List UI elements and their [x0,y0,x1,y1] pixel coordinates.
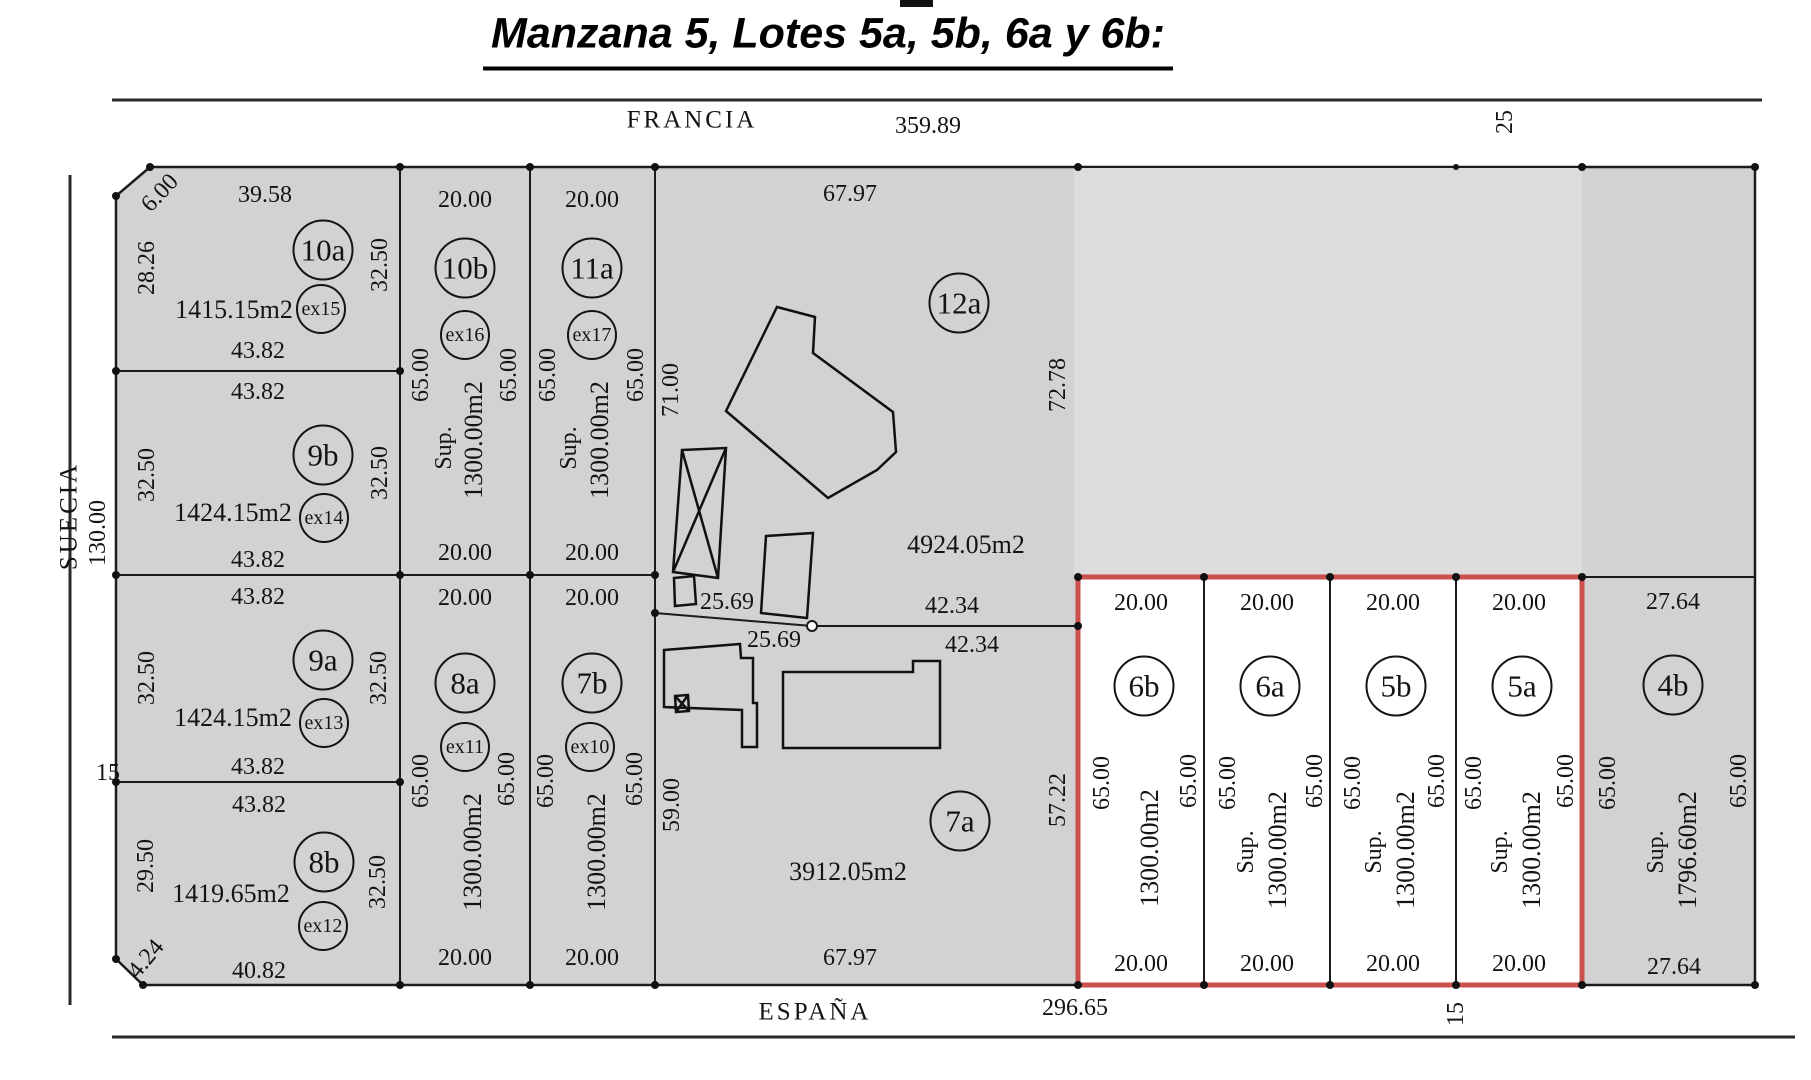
lot-10a-label: 10a [301,232,346,268]
lot-6a-dim-left: 65.00 [1216,756,1240,810]
lot-9b-label: 9b [308,437,339,473]
lot-8a-dim-top: 20.00 [438,586,492,610]
lot-4b-label: 4b [1658,667,1689,703]
boundary-dim-right-upper: 42.34 [925,594,979,618]
lot-7a-dim-left: 59.00 [660,778,684,832]
lot-8b-dim-bottom: 40.82 [232,959,286,983]
lot-9b-badge: 9b [293,425,354,486]
lot-9b-dim-right: 32.50 [368,446,392,500]
boundary-dim-right-lower: 42.34 [945,633,999,657]
lot-9a-dim-left: 32.50 [135,651,159,705]
lot-7b-ex-badge: ex10 [565,722,615,772]
lot-6b-label: 6b [1129,668,1160,704]
lot-4b-dim-left: 65.00 [1596,756,1620,810]
lot-7b-dim-right: 65.00 [623,752,647,806]
lot-8b-dim-left: 29.50 [134,839,158,893]
lot-6a-sup: Sup. [1234,830,1258,873]
lot-8b-ex-label: ex12 [304,915,343,938]
lot-5a-dim-top: 20.00 [1492,591,1546,615]
lot-6a-badge: 6a [1240,656,1301,717]
lot-11a-dim-top: 20.00 [565,188,619,212]
lot-5b-dim-top: 20.00 [1366,591,1420,615]
lot-8a-label: 8a [450,665,479,701]
lot-6a-dim-top: 20.00 [1240,591,1294,615]
lot-6a-dim-bottom: 20.00 [1240,952,1294,976]
lot-5b-area: 1300.00m2 [1393,791,1419,909]
lot-8b-area: 1419.65m2 [172,881,290,907]
lot-10b-dim-right: 65.00 [497,348,521,402]
lot-5b-dim-right: 65.00 [1425,754,1449,808]
lot-10b-badge: 10b [435,238,496,299]
lot-12a-dim-left: 71.00 [659,363,683,417]
lot-8a-ex-badge: ex11 [440,722,490,772]
street-name-espana: ESPAÑA [759,1000,872,1025]
lot-9b-ex-badge: ex14 [299,493,349,543]
lot-10b-ex-label: ex16 [446,324,485,347]
lot-5b-sup: Sup. [1362,830,1386,873]
lot-7a-area: 3912.05m2 [789,859,907,885]
suecia-total-dim: 130.00 [86,500,110,566]
lot-6b-badge: 6b [1114,656,1175,717]
lot-6a-area: 1300.00m2 [1265,791,1291,909]
lot-10a-dim-left: 28.26 [135,241,159,295]
lot-6b-dim-bottom: 20.00 [1114,952,1168,976]
lot-9a-ex-label: ex13 [305,712,344,735]
lot-7a-badge: 7a [930,791,991,852]
street-name-suecia: SUECIA [57,462,82,570]
lot-4b-sup: Sup. [1644,830,1668,873]
lot-10a-badge: 10a [293,220,354,281]
lot-12a-area: 4924.05m2 [907,532,1025,558]
lot-10b-label: 10b [442,250,489,286]
lot-6b-dim-top: 20.00 [1114,591,1168,615]
lot-11a-sup: Sup. [557,426,581,469]
lot-12a-label: 12a [937,285,982,321]
lot-10a-area: 1415.15m2 [175,297,293,323]
lot-6b-dim-right: 65.00 [1177,754,1201,808]
lot-6b-dim-left: 65.00 [1090,756,1114,810]
lot-4b-area: 1796.60m2 [1675,791,1701,909]
lot-10a-dim-right: 32.50 [368,238,392,292]
lot-7b-label: 7b [577,665,608,701]
top-right-dim: 25 [1493,110,1517,134]
lot-9b-dim-top: 43.82 [231,380,285,404]
lot-11a-area: 1300.00m2 [587,381,613,499]
lot-12a-dim-right: 72.78 [1046,358,1070,412]
lot-5a-dim-bottom: 20.00 [1492,952,1546,976]
lot-5a-label: 5a [1507,668,1536,704]
lot-9a-dim-bottom: 43.82 [231,755,285,779]
lot-6b-area: 1300.00m2 [1137,789,1163,907]
lot-9b-dim-bottom: 43.82 [231,548,285,572]
lot-5a-sup: Sup. [1488,830,1512,873]
lot-9a-badge: 9a [293,630,354,691]
bottom-right-dim: 15 [1444,1002,1468,1026]
lot-12a-badge: 12a [929,273,990,334]
lot-10a-ex-badge: ex15 [296,284,346,334]
lot-5a-badge: 5a [1492,656,1553,717]
lot-10a-dim-top: 39.58 [238,183,292,207]
page-title: Manzana 5, Lotes 5a, 5b, 6a y 6b: [483,10,1173,71]
lot-12a-dim-top: 67.97 [823,182,877,206]
lot-11a-ex-label: ex17 [573,324,612,347]
lot-5b-dim-left: 65.00 [1341,756,1365,810]
lot-5b-badge: 5b [1366,656,1427,717]
lot-7b-area: 1300.00m2 [584,793,610,911]
lot-8b-ex-badge: ex12 [298,901,348,951]
lot-5b-label: 5b [1381,668,1412,704]
lot-8a-ex-label: ex11 [446,736,484,759]
lot-11a-dim-bottom: 20.00 [565,541,619,565]
boundary-junction-circle [807,621,817,631]
lot-9a-label: 9a [308,642,337,678]
espana-total-dim: 296.65 [1042,996,1108,1020]
lot-8b-dim-right: 32.50 [366,855,390,909]
lot-6a-dim-right: 65.00 [1303,754,1327,808]
survey-plan: Manzana 5, Lotes 5a, 5b, 6a y 6b: FRANCI… [0,0,1811,1080]
lot-7a-dim-bottom: 67.97 [823,946,877,970]
lot-10a-ex-label: ex15 [302,298,341,321]
lot-11a-badge: 11a [562,238,623,299]
lot-9a-area: 1424.15m2 [174,705,292,731]
lot-11a-label: 11a [570,250,614,286]
left-street-width-dim: 15 [96,761,120,785]
lot-10b-sup: Sup. [432,426,456,469]
lot-10b-dim-bottom: 20.00 [438,541,492,565]
lot-10b-area: 1300.00m2 [461,381,487,499]
lot-7a-dim-right: 57.22 [1046,773,1070,827]
lot-7b-dim-bottom: 20.00 [565,946,619,970]
lot-9a-dim-top: 43.82 [231,585,285,609]
lot-10b-ex-badge: ex16 [440,310,490,360]
lot-8a-badge: 8a [435,653,496,714]
lot-8b-label: 8b [309,844,340,880]
lot-5b-dim-bottom: 20.00 [1366,952,1420,976]
lot-7b-dim-top: 20.00 [565,586,619,610]
lot-8a-dim-left: 65.00 [409,754,433,808]
boundary-dim-left-upper: 25.69 [700,590,754,614]
lot-9b-ex-label: ex14 [305,507,344,530]
lot-7a-label: 7a [945,803,974,839]
lot-5a-area: 1300.00m2 [1519,791,1545,909]
lot-4b-dim-top: 27.64 [1646,590,1700,614]
lot-11a-ex-badge: ex17 [567,310,617,360]
lot-5a-dim-right: 65.00 [1554,754,1578,808]
lot-8b-badge: 8b [294,832,355,893]
lot-11a-dim-left: 65.00 [536,348,560,402]
lot-7b-badge: 7b [562,653,623,714]
street-name-francia: FRANCIA [627,108,758,133]
scan-artifact [900,0,933,7]
unlabeled-light-parcel [1074,168,1582,577]
lot-9a-dim-right: 32.50 [367,651,391,705]
lot-4b-badge: 4b [1643,655,1704,716]
lot-5a-dim-left: 65.00 [1462,756,1486,810]
lot-8a-area: 1300.00m2 [460,793,486,911]
lot-10b-dim-top: 20.00 [438,188,492,212]
boundary-dim-left-lower: 25.69 [747,628,801,652]
lot-11a-dim-right: 65.00 [624,348,648,402]
lot-8a-dim-right: 65.00 [495,752,519,806]
lot-8a-dim-bottom: 20.00 [438,946,492,970]
lot-9b-area: 1424.15m2 [174,500,292,526]
lot-8b-dim-top: 43.82 [232,793,286,817]
lot-6a-label: 6a [1255,668,1284,704]
lot-7b-dim-left: 65.00 [534,754,558,808]
lot-7b-ex-label: ex10 [571,736,610,759]
lot-9b-dim-left: 32.50 [135,448,159,502]
francia-total-dim: 359.89 [895,114,961,138]
lot-10a-dim-bottom: 43.82 [231,339,285,363]
lot-4b-dim-right: 65.00 [1727,754,1751,808]
lot-9a-ex-badge: ex13 [299,698,349,748]
lot-4b-dim-bottom: 27.64 [1647,955,1701,979]
plan-drawing [0,0,1811,1080]
lot-10b-dim-left: 65.00 [409,348,433,402]
